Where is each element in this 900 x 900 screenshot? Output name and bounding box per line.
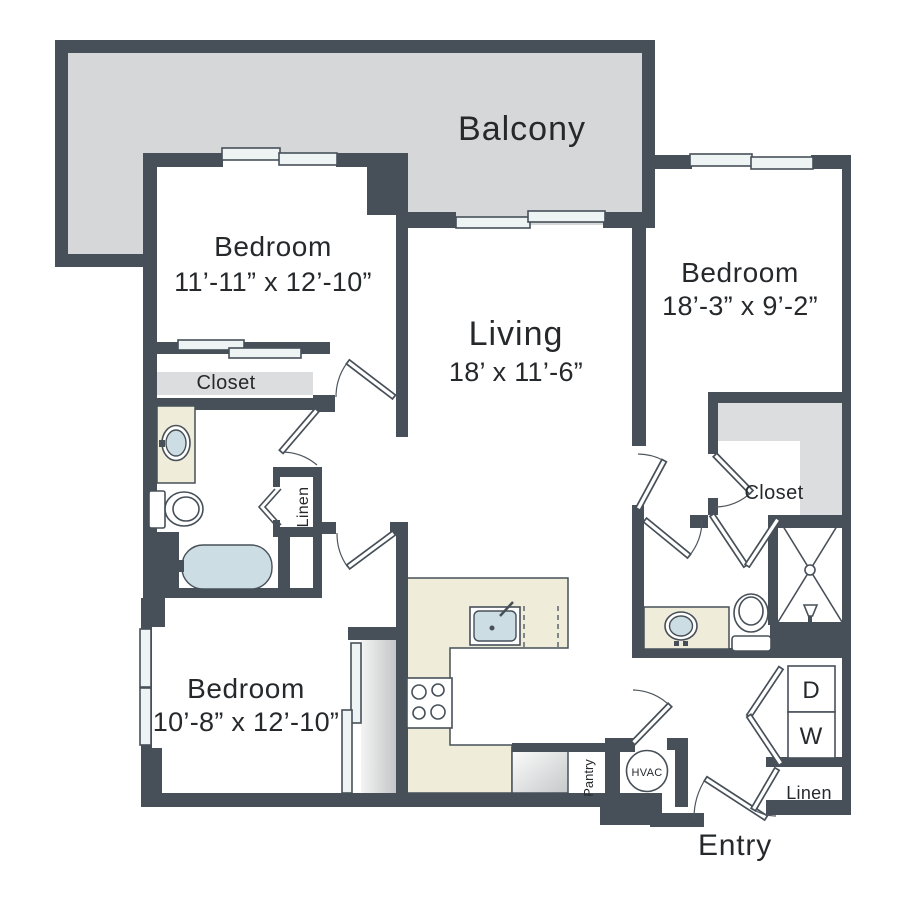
wall-segment	[690, 515, 708, 528]
closet-right-label: Closet	[744, 482, 803, 504]
wall-segment	[708, 392, 851, 403]
balcony-sliding-door	[528, 211, 605, 222]
bathtub	[182, 545, 272, 589]
sink-faucet	[683, 641, 688, 646]
wall-segment	[55, 40, 68, 267]
kitchen-sink-basin	[474, 611, 516, 641]
sliding-closet-door	[342, 710, 352, 793]
closet-shelf	[718, 403, 842, 441]
door-arc	[281, 452, 317, 465]
closet-left-label: Closet	[196, 372, 255, 394]
door-leaf	[631, 703, 672, 744]
wall-segment	[770, 622, 851, 658]
wall-segment	[55, 40, 655, 53]
door-leaf	[346, 360, 395, 399]
floor-plan-canvas: Balcony Bedroom 11’-11” x 12’-10” Living…	[0, 0, 900, 900]
wall-segment	[708, 392, 718, 454]
living-room-dimensions: 18’ x 11’-6”	[449, 357, 583, 387]
kitchen-sink-drain	[490, 626, 495, 631]
refrigerator	[512, 748, 568, 793]
bedroom-bottom-left-dimensions: 10’-8” x 12’-10”	[153, 707, 339, 737]
sink-faucet	[674, 641, 679, 646]
pantry-label: Pantry	[581, 759, 596, 797]
window	[751, 157, 813, 169]
bifold-door-chevron	[265, 489, 281, 525]
bathroom-sink-bowl	[670, 616, 693, 636]
double-door-leaf	[710, 514, 748, 568]
door-arc	[337, 533, 348, 567]
toilet-bowl-inner	[173, 497, 199, 521]
entry-label: Entry	[698, 829, 772, 862]
bedroom-bottom-left-label: Bedroom	[187, 673, 305, 704]
wall-segment	[408, 212, 456, 228]
floor-plan: Balcony Bedroom 11’-11” x 12’-10” Living…	[0, 0, 900, 900]
shower-drain	[805, 565, 815, 575]
wall-segment	[278, 532, 290, 592]
bifold-door-chevron	[259, 489, 275, 525]
hvac-label: HVAC	[632, 767, 663, 779]
linen-entry-label: Linen	[786, 783, 832, 803]
sink-faucet	[159, 440, 165, 447]
door-arc	[336, 362, 348, 397]
sliding-closet-door	[229, 348, 301, 358]
door-leaf	[636, 459, 667, 510]
shower-head-stem	[808, 616, 812, 626]
wall-segment	[603, 212, 655, 228]
bathroom-sink-bowl	[166, 430, 186, 456]
wall-segment	[141, 793, 613, 807]
bedroom-right-dimensions: 18’-3” x 9’-2”	[662, 291, 818, 321]
wall-segment	[632, 505, 644, 658]
window	[690, 154, 752, 166]
living-room-label: Living	[469, 315, 564, 353]
wall-segment	[313, 522, 336, 534]
bedroom-top-left-dimensions: 11’-11” x 12’-10”	[174, 267, 372, 297]
tub-faucet	[173, 560, 184, 572]
window	[140, 629, 151, 687]
bedroom-right-label: Bedroom	[681, 257, 799, 288]
wall-segment	[396, 153, 408, 437]
wall-segment	[143, 153, 157, 355]
balcony-label: Balcony	[458, 110, 586, 148]
wall-segment	[512, 743, 613, 752]
wall-segment	[605, 740, 620, 807]
bedroom-top-left-label: Bedroom	[214, 231, 332, 262]
wall-segment	[396, 522, 408, 807]
stove	[407, 678, 452, 728]
toilet-tank	[149, 491, 165, 528]
wall-segment	[648, 155, 692, 169]
balcony-sliding-door	[456, 217, 530, 228]
linen-bathroom-label: Linen	[295, 487, 312, 528]
wall-segment	[348, 627, 396, 640]
toilet-bowl-inner	[739, 597, 763, 625]
shower-head	[804, 605, 817, 616]
wall-segment	[55, 254, 157, 267]
wall-segment	[650, 813, 704, 827]
dryer-label: D	[802, 677, 819, 704]
window	[222, 148, 280, 160]
window	[279, 153, 337, 165]
wall-segment	[141, 748, 162, 796]
bifold-door-leaf	[747, 667, 783, 718]
wall-segment	[632, 212, 646, 446]
sliding-closet-interior	[361, 640, 396, 793]
wall-segment	[675, 738, 688, 807]
toilet-tank	[732, 636, 771, 651]
door-arc	[694, 779, 706, 818]
bifold-door-leaf	[747, 714, 783, 765]
window	[140, 688, 151, 745]
door-leaf	[279, 408, 319, 453]
wall-segment	[842, 155, 851, 814]
door-leaf	[643, 518, 690, 558]
door-leaf	[347, 531, 396, 569]
wall-segment	[273, 467, 280, 487]
closet-shelf	[800, 441, 842, 515]
door-arc	[638, 454, 664, 461]
washer-label: W	[800, 723, 823, 750]
door-arc	[633, 690, 670, 706]
wall-segment	[642, 40, 655, 226]
